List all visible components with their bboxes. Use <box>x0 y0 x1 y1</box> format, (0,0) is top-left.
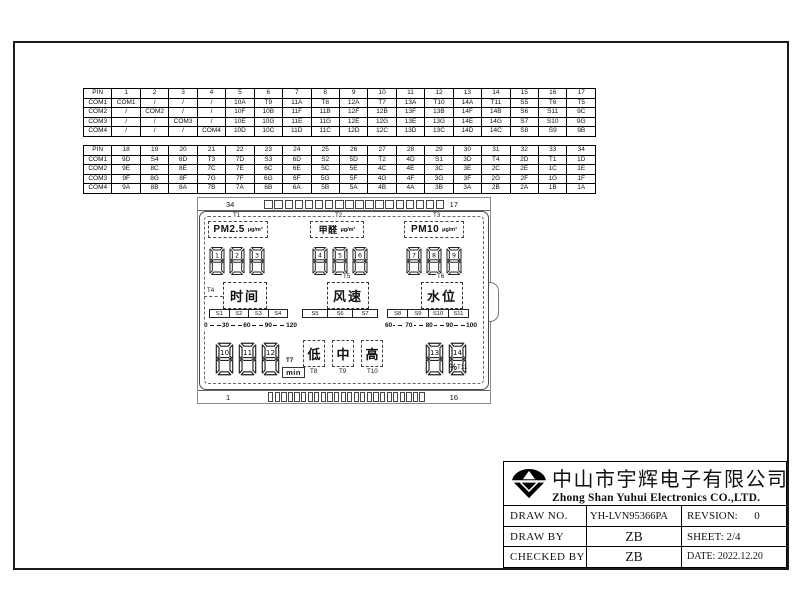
pin-cell: 1 <box>112 89 140 99</box>
pin-cell: 13D <box>396 127 424 137</box>
connector-pad <box>275 392 280 402</box>
pin-cell: 15 <box>510 89 538 99</box>
pm25-unit: µg/m³ <box>248 227 263 233</box>
pin-cell: 26 <box>339 146 367 156</box>
pin-cell: 6B <box>254 184 282 194</box>
waterlevel-scale: 60708090100 <box>384 321 478 330</box>
connector-pad <box>380 392 385 402</box>
digit-group-formaldehyde: 456 <box>311 244 369 278</box>
pin-cell: 11C <box>311 127 339 137</box>
connector-pad <box>365 200 374 209</box>
pin-cell: COM2 <box>140 108 168 118</box>
connector-pad <box>406 200 415 209</box>
pin-cell: 5E <box>339 165 367 175</box>
svg-text:2: 2 <box>235 252 239 259</box>
revision-field: REVSION: 0 <box>681 506 786 526</box>
pin-cell: 17 <box>567 89 596 99</box>
pin-table-18-34: PIN1819202122232425262728293031323334COM… <box>83 145 596 194</box>
connector-pad <box>308 392 313 402</box>
pin-cell: S2 <box>311 155 339 165</box>
company-name-cn: 中山市宇辉电子有限公司 <box>552 463 786 492</box>
connector-pad <box>360 392 365 402</box>
company-header: 中山市宇辉电子有限公司 Zhong Shan Yuhui Electronics… <box>504 462 786 506</box>
pin-number-bottom-right: 16 <box>450 393 458 402</box>
connector-pad <box>314 392 319 402</box>
pin-cell: 3F <box>453 174 481 184</box>
pin-cell: 7D <box>226 155 254 165</box>
connector-pad <box>347 392 352 402</box>
connector-pad <box>400 392 405 402</box>
pin-cell: 13F <box>396 108 424 118</box>
pin-cell: 14F <box>453 108 481 118</box>
pin-cell: 1C <box>539 165 567 175</box>
pin-cell: 14A <box>453 98 481 108</box>
pin-cell: 14D <box>453 127 481 137</box>
pin-cell: 10F <box>226 108 254 118</box>
svg-text:14: 14 <box>453 348 463 357</box>
sheet-field: SHEET: 2/4 <box>681 526 786 546</box>
pin-cell: 14E <box>453 117 481 127</box>
connector-pad <box>393 392 398 402</box>
pin-cell: 8E <box>169 165 197 175</box>
pin-cell: 12G <box>368 117 396 127</box>
bargraph-s5-s7: S5S6S7 <box>302 309 378 318</box>
segment-ref-t4: T4 <box>206 287 215 294</box>
pin-cell: 5A <box>339 184 367 194</box>
connector-pad <box>327 392 332 402</box>
pin-cell: 12D <box>339 127 367 137</box>
pin-cell: 1B <box>539 184 567 194</box>
pin-number-top-left: 34 <box>226 200 234 209</box>
connector-pad <box>367 392 372 402</box>
pin-cell: 13 <box>453 89 481 99</box>
pin-cell: 4B <box>368 184 396 194</box>
pin-cell: 1A <box>567 184 596 194</box>
pin-cell: / <box>112 108 140 118</box>
pin-cell: 12C <box>368 127 396 137</box>
pin-cell: 2D <box>510 155 538 165</box>
segment-ref-t5: T5 <box>342 273 351 280</box>
pin-cell: 5C <box>311 165 339 175</box>
scale-tick: 60 <box>384 322 393 329</box>
draw-by-value: ZB <box>586 526 681 546</box>
pin-cell: 6D <box>283 155 311 165</box>
connector-pad <box>268 392 273 402</box>
pin-cell: 9G <box>567 117 596 127</box>
pin-cell: / <box>169 127 197 137</box>
pin-cell: 4 <box>197 89 225 99</box>
lcd-glass: T1 T2 T3 PM2.5 µg/m³ 甲醛 µg/m³ PM10 µg/m³… <box>199 211 489 390</box>
svg-text:11: 11 <box>243 348 252 357</box>
pin-cell: 8D <box>169 155 197 165</box>
percent-icon: % <box>449 362 457 372</box>
pin-cell: COM3 <box>84 174 112 184</box>
pin-cell: 6A <box>283 184 311 194</box>
bargraph-cell-s2: S2 <box>230 309 250 318</box>
pin-cell: T5 <box>567 98 596 108</box>
seven-segment-digit-13: 13 <box>424 339 445 379</box>
svg-text:13: 13 <box>430 348 440 357</box>
pin-cell: 8A <box>169 184 197 194</box>
percent-indicator: % T11 <box>449 362 467 372</box>
connector-pad <box>436 200 445 209</box>
segment-ref-t9: T9 <box>338 368 347 375</box>
scale-tick: 70 <box>404 322 413 329</box>
pin-cell: 10G <box>254 117 282 127</box>
seven-segment-digit-7: 7 <box>405 244 423 278</box>
pin-cell: COM3 <box>169 117 197 127</box>
pin-cell: 10C <box>254 127 282 137</box>
connector-pad <box>294 392 299 402</box>
pin-cell: 11D <box>283 127 311 137</box>
date-field: DATE: 2022.12.20 <box>681 546 786 566</box>
seven-segment-digit-2: 2 <box>228 244 246 278</box>
connector-pads-top <box>264 200 446 209</box>
pin-cell: T10 <box>425 98 453 108</box>
pin-cell: 3A <box>453 184 481 194</box>
pin-cell: 10E <box>226 117 254 127</box>
pin-cell: 13G <box>425 117 453 127</box>
pin-cell: 4A <box>396 184 424 194</box>
pin-cell: S3 <box>254 155 282 165</box>
company-name-en: Zhong Shan Yuhui Electronics CO.,LTD. <box>552 492 786 504</box>
pin-cell: 6E <box>283 165 311 175</box>
pin-cell: 27 <box>368 146 396 156</box>
svg-text:1: 1 <box>215 252 219 259</box>
connector-pad <box>387 392 392 402</box>
pin-cell: 13C <box>425 127 453 137</box>
pin-cell: 14B <box>482 108 510 118</box>
svg-text:7: 7 <box>412 252 416 259</box>
pin-cell: 2C <box>482 165 510 175</box>
pin-cell: / <box>197 108 225 118</box>
pin-cell: 2 <box>140 89 168 99</box>
pin-cell: T7 <box>368 98 396 108</box>
pin-cell: T2 <box>368 155 396 165</box>
pin-cell: 5 <box>226 89 254 99</box>
pin-cell: COM1 <box>84 155 112 165</box>
bargraph-cell-s7: S7 <box>353 309 378 318</box>
pin-cell: COM3 <box>84 117 112 127</box>
pin-cell: 7A <box>226 184 254 194</box>
pin-cell: / <box>197 117 225 127</box>
seven-segment-digit-6: 6 <box>351 244 369 278</box>
connector-pad <box>301 392 306 402</box>
pm10-label-box: PM10 µg/m³ <box>404 221 464 238</box>
segment-ref-t8: T8 <box>309 368 318 375</box>
bargraph-cell-s6: S6 <box>328 309 353 318</box>
bargraph-cell-s8: S8 <box>387 309 408 318</box>
pin-cell: / <box>169 98 197 108</box>
pin-cell: 8G <box>140 174 168 184</box>
connector-pad <box>285 200 294 209</box>
pin-cell: 31 <box>482 146 510 156</box>
seven-segment-digit-4: 4 <box>311 244 329 278</box>
connector-pad <box>334 392 339 402</box>
svg-text:12: 12 <box>266 348 275 357</box>
pin-cell: COM2 <box>84 108 112 118</box>
pin-cell: 4D <box>396 155 424 165</box>
connector-pad <box>288 392 293 402</box>
draw-no-value: YH-LVN95366PA <box>586 506 681 526</box>
pin-number-bottom-left: 1 <box>226 393 230 402</box>
pin-cell: 11 <box>396 89 424 99</box>
pin-cell: 7C <box>197 165 225 175</box>
pin-cell: 6 <box>254 89 282 99</box>
scale-tick: 60 <box>242 322 251 329</box>
pin-cell: COM4 <box>84 127 112 137</box>
connector-pad <box>385 200 394 209</box>
pin-number-top-right: 17 <box>450 200 458 209</box>
pin-cell: COM2 <box>84 165 112 175</box>
pin-cell: 2A <box>510 184 538 194</box>
pin-cell: 10B <box>254 108 282 118</box>
digit-group-percent: 1314 <box>424 339 468 379</box>
pin-cell: T3 <box>197 155 225 165</box>
formaldehyde-unit: µg/m³ <box>341 227 356 233</box>
bargraph-cell-s10: S10 <box>429 309 449 318</box>
connector-pad <box>345 200 354 209</box>
pin-cell: 11E <box>283 117 311 127</box>
pin-cell: 3B <box>425 184 453 194</box>
pin-cell: 7F <box>226 174 254 184</box>
pin-cell: / <box>112 117 140 127</box>
scale-tick: 80 <box>425 322 434 329</box>
pin-cell: 11G <box>311 117 339 127</box>
pin-cell: 5D <box>339 155 367 165</box>
connector-pad <box>295 200 304 209</box>
connector-pad <box>355 200 364 209</box>
pm25-label: PM2.5 <box>213 224 244 235</box>
connector-pad <box>373 392 378 402</box>
pin-cell: 7B <box>197 184 225 194</box>
pin-cell: 18 <box>112 146 140 156</box>
seven-segment-digit-1: 1 <box>208 244 226 278</box>
pm25-label-box: PM2.5 µg/m³ <box>208 221 268 238</box>
segment-ref-t10: T10 <box>366 368 379 375</box>
pin-cell: 24 <box>283 146 311 156</box>
digit-group-pm25: 123 <box>208 244 266 278</box>
svg-text:3: 3 <box>255 252 259 259</box>
pin-cell: 29 <box>425 146 453 156</box>
digit-group-pm10: 789 <box>405 244 463 278</box>
pin-cell: S1 <box>425 155 453 165</box>
pin-cell: 14 <box>482 89 510 99</box>
svg-text:5: 5 <box>338 252 342 259</box>
pm10-label: PM10 <box>411 224 439 235</box>
waterlevel-label-box: 水位 <box>421 282 463 309</box>
pin-cell: 12B <box>368 108 396 118</box>
segment-ref-t3: T3 <box>432 212 441 219</box>
pin-cell: S9 <box>539 127 567 137</box>
lcd-top-connector: 34 17 <box>198 198 490 211</box>
pin-cell: 11F <box>283 108 311 118</box>
pin-cell: S7 <box>510 117 538 127</box>
pin-cell: 1E <box>567 165 596 175</box>
scale-tick: 90 <box>445 322 454 329</box>
pin-cell: 2B <box>482 184 510 194</box>
pin-cell: 9B <box>567 127 596 137</box>
pin-cell: 2G <box>482 174 510 184</box>
pin-cell: S4 <box>140 155 168 165</box>
pin-cell: T6 <box>539 98 567 108</box>
pin-cell: 30 <box>453 146 481 156</box>
digit-group-minutes: 101112 <box>214 339 281 379</box>
pin-cell: / <box>140 127 168 137</box>
pin-cell: 3 <box>169 89 197 99</box>
pin-cell: 8B <box>140 184 168 194</box>
pin-cell: 6G <box>254 174 282 184</box>
pin-cell: 7G <box>197 174 225 184</box>
connector-pad <box>413 392 418 402</box>
pin-cell: 9F <box>112 174 140 184</box>
pin-cell: 6C <box>254 165 282 175</box>
time-scale: 0306090120 <box>203 321 298 330</box>
pin-cell: T11 <box>482 98 510 108</box>
pin-cell: 5B <box>311 184 339 194</box>
bargraph-cell-s1: S1 <box>209 309 230 318</box>
connector-pad <box>354 392 359 402</box>
connector-pad <box>321 392 326 402</box>
pin-cell: PIN <box>84 146 112 156</box>
seven-segment-digit-11: 11 <box>237 339 258 379</box>
svg-text:4: 4 <box>318 252 322 259</box>
bargraph-cell-s5: S5 <box>302 309 328 318</box>
pin-cell: 4C <box>368 165 396 175</box>
segment-ref-t2: T2 <box>334 212 343 219</box>
pin-cell: 9 <box>339 89 367 99</box>
scale-tick: 90 <box>264 322 273 329</box>
bargraph-s1-s4: S1S2S3S4 <box>209 309 288 318</box>
connector-pad <box>396 200 405 209</box>
seven-segment-digit-12: 12 <box>260 339 281 379</box>
level-mid-indicator: 中 <box>332 340 354 367</box>
svg-text:6: 6 <box>358 252 362 259</box>
pin-cell: 4E <box>396 165 424 175</box>
scale-tick: 100 <box>465 322 478 329</box>
pin-cell: 22 <box>226 146 254 156</box>
pin-cell: 1F <box>567 174 596 184</box>
pin-cell: / <box>140 117 168 127</box>
seven-segment-digit-14: 14 <box>447 339 468 379</box>
pin-cell: 9C <box>567 108 596 118</box>
formaldehyde-label-box: 甲醛 µg/m³ <box>310 221 364 238</box>
pin-cell: 10D <box>226 127 254 137</box>
bargraph-cell-s11: S11 <box>449 309 469 318</box>
pin-cell: COM4 <box>197 127 225 137</box>
seven-segment-digit-10: 10 <box>214 339 235 379</box>
connector-pad <box>419 392 424 402</box>
windspeed-label-box: 风速 <box>327 282 369 309</box>
pin-cell: 9E <box>112 165 140 175</box>
level-high-indicator: 高 <box>361 340 383 367</box>
pin-cell: 2F <box>510 174 538 184</box>
pin-cell: T1 <box>539 155 567 165</box>
drawing-page: PIN1234567891011121314151617COM1COM1///1… <box>0 0 800 608</box>
pin-cell: 8C <box>140 165 168 175</box>
connector-pad <box>264 200 273 209</box>
pin-cell: 12 <box>425 89 453 99</box>
company-names: 中山市宇辉电子有限公司 Zhong Shan Yuhui Electronics… <box>552 463 786 504</box>
pin-cell: T9 <box>254 98 282 108</box>
connector-pad <box>335 200 344 209</box>
pin-cell: 8F <box>169 174 197 184</box>
pin-cell: 3D <box>453 155 481 165</box>
connector-pad <box>426 200 435 209</box>
pin-table-1-17: PIN1234567891011121314151617COM1COM1///1… <box>83 88 596 137</box>
pin-cell: 8 <box>311 89 339 99</box>
segment-ref-t7: T7 <box>285 357 294 364</box>
connector-pad <box>325 200 334 209</box>
level-low-indicator: 低 <box>303 340 325 367</box>
draw-no-label: DRAW NO. <box>504 506 586 526</box>
connector-pad <box>274 200 283 209</box>
connector-pad <box>281 392 286 402</box>
pin-cell: 19 <box>140 146 168 156</box>
pin-cell: PIN <box>84 89 112 99</box>
pin-cell: 16 <box>539 89 567 99</box>
pin-cell: 1D <box>567 155 596 165</box>
pin-cell: 13E <box>396 117 424 127</box>
bargraph-cell-s9: S9 <box>408 309 428 318</box>
pin-cell: / <box>112 127 140 137</box>
segment-ref-t11: T11 <box>457 364 467 371</box>
segment-ref-t6: T6 <box>436 273 445 280</box>
svg-text:10: 10 <box>220 348 230 357</box>
connector-pad <box>416 200 425 209</box>
pin-cell: / <box>197 98 225 108</box>
scale-tick: 30 <box>221 322 230 329</box>
pin-cell: S10 <box>539 117 567 127</box>
segment-ref-t1: T1 <box>232 212 241 219</box>
connector-pad <box>341 392 346 402</box>
pin-cell: 14C <box>482 127 510 137</box>
pin-cell: 14G <box>482 117 510 127</box>
pin-cell: S8 <box>510 127 538 137</box>
pin-cell: 20 <box>169 146 197 156</box>
bargraph-cell-s4: S4 <box>269 309 289 318</box>
pin-cell: 5F <box>339 174 367 184</box>
connector-pad <box>406 392 411 402</box>
checked-by-value: ZB <box>586 546 681 566</box>
pin-cell: COM4 <box>84 184 112 194</box>
pin-cell: 10 <box>368 89 396 99</box>
pin-cell: T8 <box>311 98 339 108</box>
connector-pad <box>305 200 314 209</box>
title-block-grid: DRAW NO. YH-LVN95366PA REVSION: 0 DRAW B… <box>504 506 786 567</box>
pin-cell: 11B <box>311 108 339 118</box>
title-block: 中山市宇辉电子有限公司 Zhong Shan Yuhui Electronics… <box>503 461 787 568</box>
pin-cell: 3E <box>453 165 481 175</box>
checked-by-label: CHECKED BY <box>504 546 586 566</box>
pin-cell: 4F <box>396 174 424 184</box>
seven-segment-digit-3: 3 <box>248 244 266 278</box>
connector-pad <box>315 200 324 209</box>
formaldehyde-label: 甲醛 <box>319 223 338 236</box>
pin-cell: T4 <box>482 155 510 165</box>
pin-cell: 5G <box>311 174 339 184</box>
pin-cell: 12F <box>339 108 367 118</box>
glass-alignment-notch <box>489 282 499 322</box>
bargraph-s8-s11: S8S9S10S11 <box>387 309 469 318</box>
scale-tick: 120 <box>285 322 298 329</box>
pin-cell: / <box>140 98 168 108</box>
t4-leader-line <box>204 296 223 297</box>
scale-tick: 0 <box>203 322 209 329</box>
pin-cell: 12E <box>339 117 367 127</box>
draw-by-label: DRAW BY <box>504 526 586 546</box>
pm10-unit: µg/m³ <box>442 227 457 233</box>
